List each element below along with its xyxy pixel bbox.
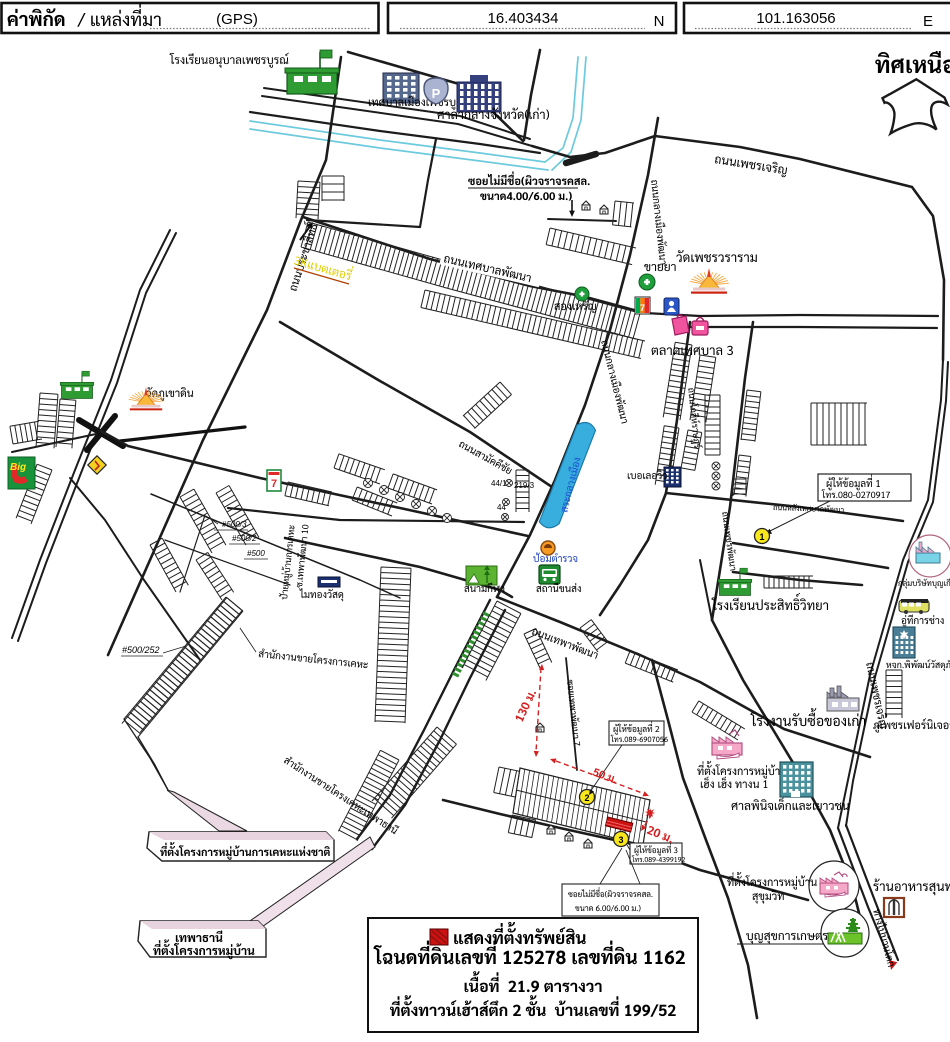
svg-text:#500/2: #500/2	[232, 534, 257, 543]
svg-text:16.403434: 16.403434	[488, 10, 559, 27]
svg-text:1: 1	[759, 532, 764, 542]
svg-text:P: P	[432, 86, 441, 101]
svg-text:#500/252: #500/252	[122, 645, 160, 655]
svg-text:#500: #500	[247, 549, 265, 558]
svg-text:7: 7	[271, 478, 277, 490]
svg-text:#500/3: #500/3	[222, 520, 247, 529]
svg-text:101.163056: 101.163056	[756, 10, 835, 27]
svg-text:7: 7	[640, 303, 645, 313]
svg-text:2: 2	[584, 793, 589, 803]
svg-text:(GPS): (GPS)	[216, 11, 258, 28]
svg-text:219/3: 219/3	[514, 481, 535, 490]
svg-text:N: N	[654, 13, 665, 30]
svg-text:44/1: 44/1	[491, 479, 507, 488]
svg-text:3: 3	[618, 835, 623, 845]
svg-text:Big: Big	[10, 462, 26, 473]
svg-text:E: E	[923, 13, 933, 30]
